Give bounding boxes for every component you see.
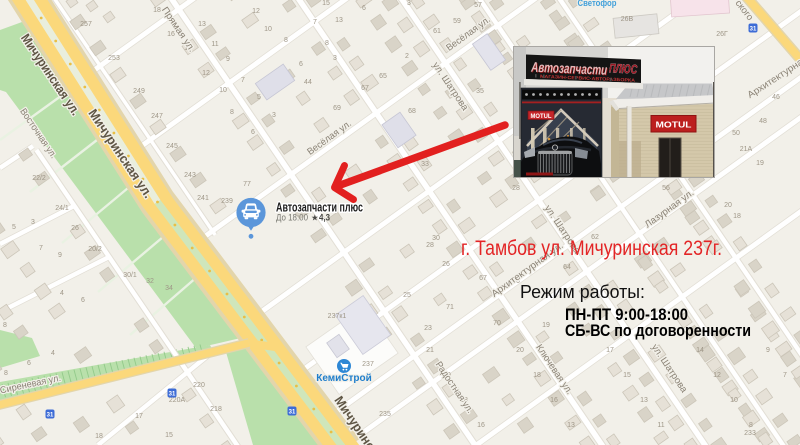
svg-text:65: 65 [379,73,387,80]
svg-text:59: 59 [453,18,461,25]
svg-text:26В: 26В [621,16,634,23]
svg-text:57: 57 [474,2,482,9]
svg-text:11: 11 [657,422,664,429]
svg-text:6: 6 [362,5,366,12]
svg-text:19: 19 [542,322,550,329]
svg-text:34: 34 [165,285,173,292]
svg-text:18: 18 [95,433,103,440]
svg-text:10: 10 [730,397,738,404]
svg-text:20: 20 [516,347,524,354]
svg-text:26: 26 [442,261,450,268]
svg-text:7: 7 [39,245,43,252]
svg-text:16: 16 [550,397,558,404]
svg-text:241: 241 [197,195,209,202]
svg-text:31: 31 [750,26,757,32]
svg-text:31: 31 [289,409,296,415]
svg-text:4: 4 [60,290,64,297]
svg-text:20: 20 [724,202,732,209]
svg-text:30/1: 30/1 [123,272,137,279]
svg-text:68: 68 [408,108,416,115]
svg-text:50: 50 [732,130,740,137]
svg-text:33: 33 [421,161,429,168]
svg-text:22/2: 22/2 [32,175,46,182]
svg-text:31: 31 [47,412,54,418]
svg-text:12: 12 [713,372,721,379]
svg-text:6: 6 [27,360,31,367]
svg-text:220: 220 [193,382,205,389]
svg-text:31: 31 [169,391,176,397]
svg-text:26Г: 26Г [716,31,728,38]
svg-text:71: 71 [446,304,454,311]
svg-text:13: 13 [640,397,648,404]
svg-text:13: 13 [567,422,575,429]
svg-text:3: 3 [407,0,411,7]
svg-text:9: 9 [58,252,62,259]
svg-text:220А: 220А [169,397,186,404]
svg-text:СБ-ВС по договоренности: СБ-ВС по договоренности [565,322,751,340]
svg-text:25: 25 [403,292,411,299]
svg-text:3: 3 [333,55,337,62]
svg-text:17: 17 [606,347,614,354]
svg-text:19: 19 [756,160,764,167]
svg-text:MOTUL: MOTUL [531,114,552,120]
svg-text:г. Тамбов ул. Мичуринская 237г: г. Тамбов ул. Мичуринская 237г. [461,237,722,260]
svg-text:До 18:00: До 18:00 [276,213,308,224]
svg-text:245: 245 [166,143,178,150]
svg-text:28: 28 [426,242,434,249]
svg-text:23: 23 [424,325,432,332]
svg-text:46: 46 [772,94,780,101]
svg-text:★: ★ [311,213,319,223]
svg-text:235: 235 [379,411,391,418]
svg-text:ПЛЮС: ПЛЮС [609,61,638,76]
svg-text:8: 8 [230,109,234,116]
svg-text:Светофор: Светофор [578,0,617,8]
svg-text:3: 3 [272,112,276,119]
svg-text:26: 26 [71,225,79,232]
svg-text:8: 8 [325,40,329,47]
svg-text:5: 5 [12,224,16,231]
svg-text:11: 11 [211,41,218,48]
svg-text:5: 5 [257,94,261,101]
svg-text:67: 67 [479,275,487,282]
svg-text:20/2: 20/2 [88,246,102,253]
svg-text:32: 32 [146,278,154,285]
svg-text:12: 12 [202,70,210,77]
svg-text:15: 15 [165,432,173,439]
svg-text:247: 247 [151,113,163,120]
svg-text:18: 18 [533,372,541,379]
svg-text:6: 6 [251,129,255,136]
svg-text:6: 6 [81,297,85,304]
svg-text:13: 13 [198,21,206,28]
svg-text:13: 13 [335,17,343,24]
svg-text:9: 9 [226,56,230,63]
svg-text:17: 17 [135,413,143,420]
svg-text:21: 21 [426,347,434,354]
svg-text:15: 15 [322,0,330,7]
svg-text:9: 9 [766,347,770,354]
svg-text:70: 70 [493,320,501,327]
svg-text:253: 253 [108,55,120,62]
svg-text:61: 61 [433,28,441,35]
svg-text:48: 48 [759,118,767,125]
svg-text:10: 10 [219,87,227,94]
svg-text:56: 56 [662,185,670,192]
svg-text:10: 10 [264,26,272,33]
svg-text:MOTUL: MOTUL [656,120,692,130]
svg-text:2: 2 [405,53,409,60]
svg-text:16: 16 [477,422,485,429]
svg-text:28: 28 [512,185,520,192]
svg-text:35: 35 [476,88,484,95]
svg-text:237к1: 237к1 [328,313,347,320]
svg-text:30: 30 [432,235,440,242]
svg-text:67: 67 [361,85,369,92]
svg-text:Режим работы:: Режим работы: [520,281,645,302]
svg-text:239: 239 [221,198,233,205]
svg-text:21А: 21А [740,146,753,153]
svg-text:4: 4 [308,79,312,86]
svg-text:237: 237 [362,361,374,368]
svg-text:8: 8 [284,37,288,44]
svg-text:7: 7 [313,19,317,26]
svg-text:243: 243 [184,172,196,179]
svg-text:257: 257 [80,21,92,28]
svg-text:14: 14 [696,347,704,354]
svg-text:15: 15 [623,372,631,379]
svg-text:64: 64 [563,264,571,271]
svg-text:7: 7 [241,77,245,84]
svg-text:8: 8 [749,422,753,429]
svg-text:24/1: 24/1 [55,205,69,212]
svg-text:8: 8 [4,370,8,377]
svg-text:7: 7 [783,372,787,379]
svg-text:4: 4 [51,350,55,357]
svg-text:249: 249 [133,88,145,95]
svg-text:218: 218 [210,406,222,413]
svg-text:18: 18 [733,213,741,220]
svg-text:69: 69 [333,105,341,112]
svg-text:12: 12 [252,8,260,15]
svg-text:233: 233 [744,430,756,437]
svg-text:77: 77 [243,181,251,188]
svg-text:6: 6 [299,61,303,68]
svg-text:3: 3 [31,219,35,226]
svg-text:8: 8 [3,322,7,329]
svg-text:КемиСтрой: КемиСтрой [316,373,372,384]
svg-text:4,3: 4,3 [319,213,330,224]
